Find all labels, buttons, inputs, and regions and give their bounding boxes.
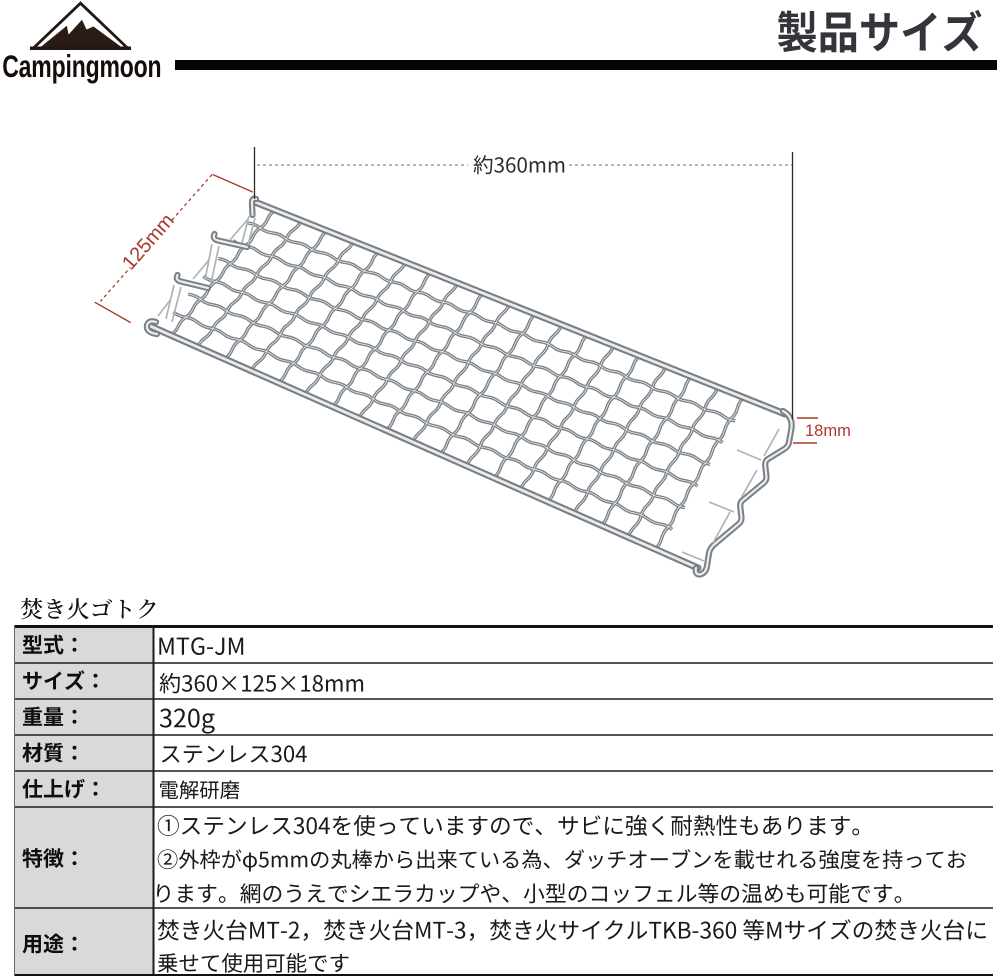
- svg-text:18mm: 18mm: [805, 422, 851, 440]
- svg-text:125mm: 125mm: [118, 210, 179, 275]
- svg-text:Campingmoon: Campingmoon: [2, 48, 161, 83]
